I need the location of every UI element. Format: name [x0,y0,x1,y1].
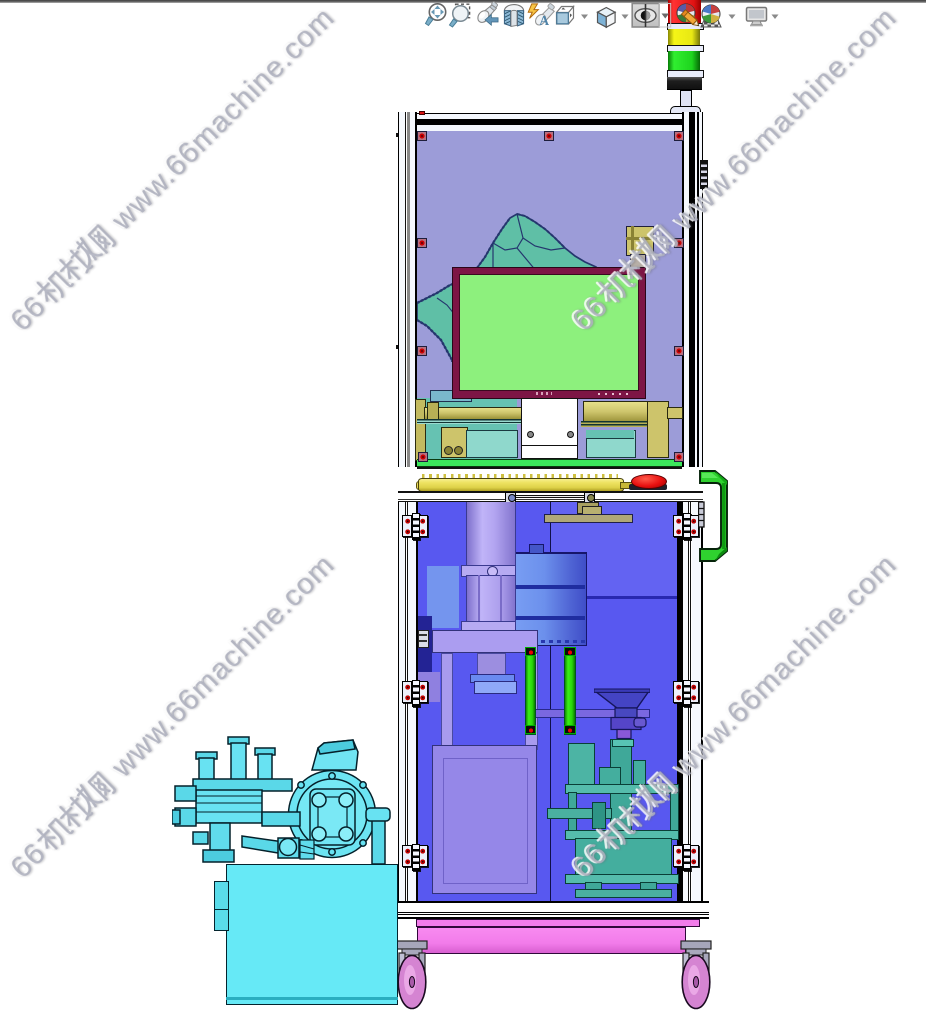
svg-text:A: A [539,13,549,28]
